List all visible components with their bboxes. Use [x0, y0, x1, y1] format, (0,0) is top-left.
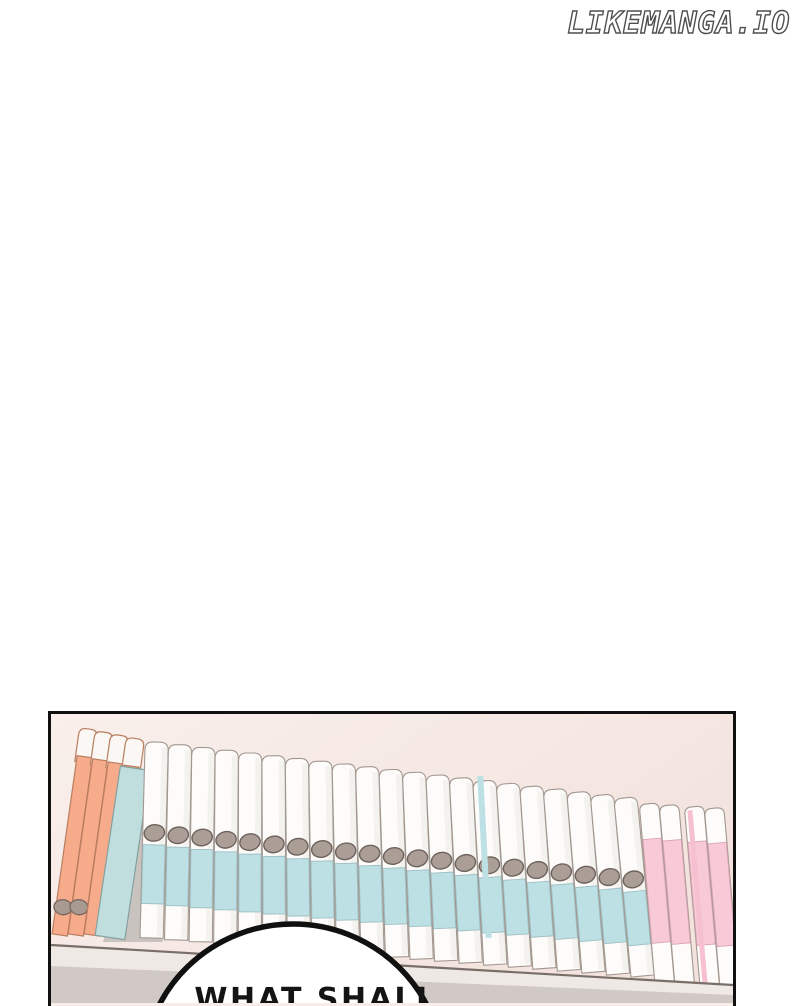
pink-books [639, 803, 733, 988]
site-watermark: LIKEMANGA.IO [514, 2, 800, 48]
book-spine [238, 753, 262, 946]
book-spine [189, 747, 215, 942]
watermark-text: LIKEMANGA.IO [567, 6, 790, 41]
bookshelf-illustration: WHAT SHALL [51, 714, 733, 1003]
book-spine [214, 750, 239, 944]
book-spine [140, 742, 168, 939]
book-spine [262, 756, 286, 948]
book-spine [164, 745, 191, 941]
book-spine [285, 758, 310, 949]
watermark-svg: LIKEMANGA.IO [514, 2, 800, 48]
book-spine [332, 764, 360, 954]
comic-panel: WHAT SHALL [48, 711, 736, 1006]
